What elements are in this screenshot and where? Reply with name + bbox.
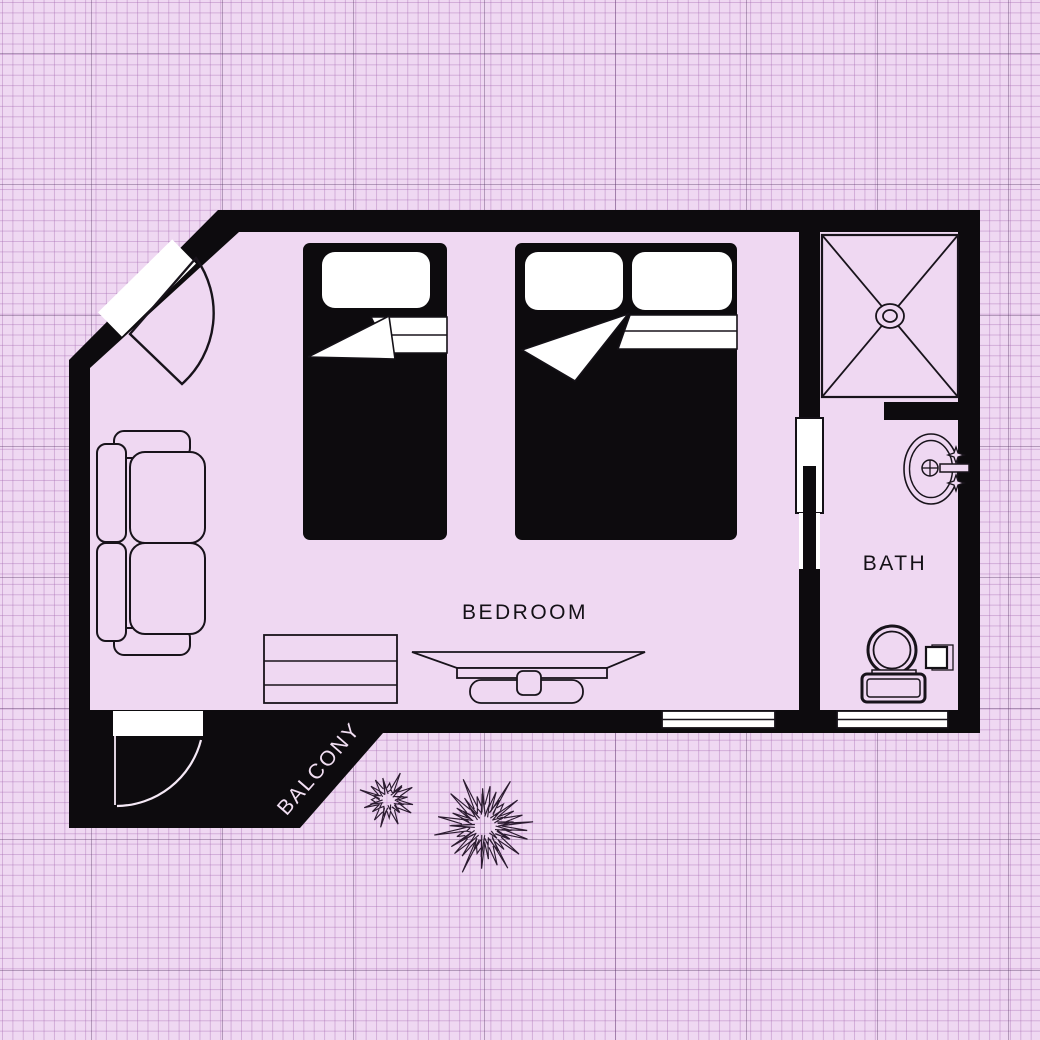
double-bed-pillow-right [632, 252, 732, 310]
toilet-tank-inner [867, 679, 920, 697]
single-bed-pillow [322, 252, 430, 308]
paper-holder-box [926, 647, 947, 668]
single-bed [303, 243, 447, 540]
bath-partition-wall [796, 232, 823, 710]
bath-door-leaf [803, 466, 816, 572]
partition-wall-lower [799, 568, 820, 710]
toilet-bowl-inner [874, 632, 911, 669]
bedroom-label: BEDROOM [462, 601, 588, 624]
double-bed-sheet [618, 315, 737, 349]
sofa-seat-cushion-bottom [130, 543, 205, 634]
window-bedroom [662, 711, 775, 728]
floor-plan: BEDROOM BATH BALCONY [0, 0, 1040, 1040]
balcony-door-opening [113, 711, 203, 736]
plant-large [434, 779, 533, 872]
plant-small [360, 773, 413, 827]
double-bed-pillow-left [525, 252, 623, 310]
sofa-back-cushion-top [97, 444, 126, 542]
shower-wall-stub [884, 402, 958, 420]
dresser-body [264, 635, 397, 703]
graph-paper-background: BEDROOM BATH BALCONY [0, 0, 1040, 1040]
bath-label: BATH [863, 552, 927, 575]
window-bath [837, 711, 948, 728]
sofa-back-cushion-bottom [97, 543, 126, 641]
sofa [97, 431, 205, 655]
shower-drain-inner [883, 310, 897, 322]
tv-mount-button [517, 671, 541, 695]
dresser [264, 635, 397, 703]
partition-wall-upper [799, 232, 820, 418]
sofa-seat-cushion-top [130, 452, 205, 543]
double-bed [515, 243, 737, 540]
sink-faucet-bar [940, 464, 969, 472]
